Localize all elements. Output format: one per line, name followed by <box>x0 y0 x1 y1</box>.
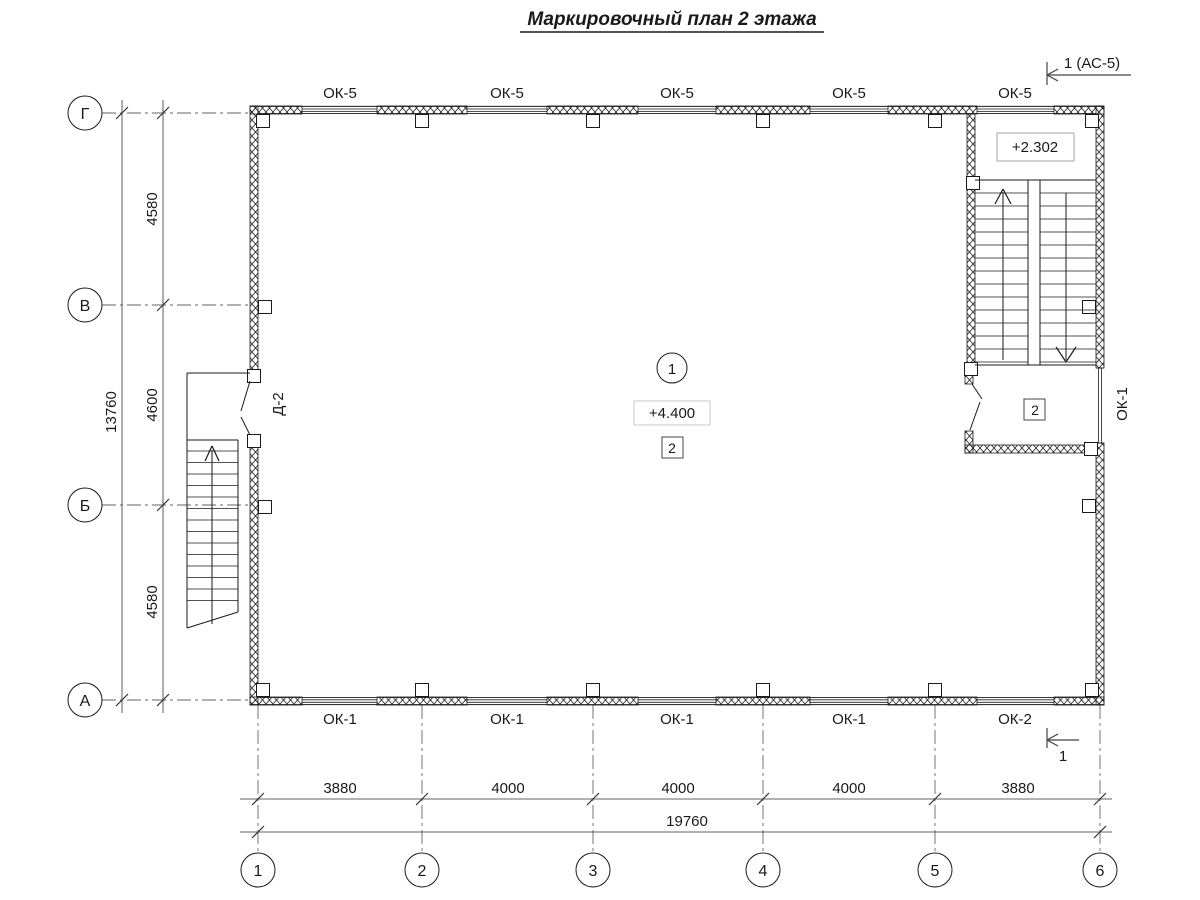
dim-total-bottom: 19760 <box>666 813 708 830</box>
section-marker-top: 1 (АС-5) <box>1047 55 1131 85</box>
dim-segment: 4580 <box>144 585 161 618</box>
section-marker-top-label: 1 (АС-5) <box>1064 55 1120 72</box>
room-number: 1 <box>668 361 676 378</box>
floor-plan-sheet: Маркировочный план 2 этажа ОК-5 ОК-5 ОК-… <box>0 0 1200 900</box>
dim-segment: 4600 <box>144 388 161 421</box>
window-label-top: ОК-5 <box>490 85 524 102</box>
axis-label: 3 <box>589 863 598 880</box>
axis-label: 6 <box>1096 863 1105 880</box>
stair-left-exterior <box>187 373 250 628</box>
window-label-bottom: ОК-1 <box>490 711 524 728</box>
axis-label: В <box>80 298 91 315</box>
dim-segment: 3880 <box>1001 780 1034 797</box>
axis-label: А <box>80 693 91 710</box>
axis-label: 5 <box>931 863 940 880</box>
floor-plan-drawing: Маркировочный план 2 этажа ОК-5 ОК-5 ОК-… <box>0 0 1200 900</box>
section-marker-bottom-label: 1 <box>1059 748 1067 765</box>
dim-segment: 4000 <box>661 780 694 797</box>
elevation-main: +4.400 <box>649 405 695 422</box>
window-label-top: ОК-5 <box>998 85 1032 102</box>
floor-mark-main: 2 <box>668 440 676 456</box>
window-label-top: ОК-5 <box>323 85 357 102</box>
section-marker-bottom: 1 <box>1047 728 1079 765</box>
axis-bubbles-bottom: 1 2 3 4 5 6 <box>241 853 1117 887</box>
axis-label: Б <box>80 498 91 515</box>
window-label-bottom: ОК-1 <box>323 711 357 728</box>
elevation-stair-landing: +2.302 <box>1012 139 1058 156</box>
axis-bubbles-left: Г В Б А <box>68 96 102 717</box>
dim-segment: 4000 <box>832 780 865 797</box>
stair-right <box>975 180 1096 365</box>
axis-label: 4 <box>759 863 768 880</box>
dim-segment: 4000 <box>491 780 524 797</box>
door-label: Д-2 <box>270 392 287 416</box>
dim-total-left: 13760 <box>103 391 120 433</box>
window-label-bottom: ОК-2 <box>998 711 1032 728</box>
dim-segment: 4580 <box>144 192 161 225</box>
window-label-top: ОК-5 <box>832 85 866 102</box>
window-label-bottom: ОК-1 <box>832 711 866 728</box>
floor-mark-vestibule: 2 <box>1031 402 1039 418</box>
window-label-bottom: ОК-1 <box>660 711 694 728</box>
window-label-right: ОК-1 <box>1114 387 1131 421</box>
dimension-lines <box>116 100 1112 838</box>
door-swings <box>241 381 982 435</box>
axis-label: Г <box>81 106 90 123</box>
axis-label: 1 <box>254 863 263 880</box>
window-label-top: ОК-5 <box>660 85 694 102</box>
dim-segment: 3880 <box>323 780 356 797</box>
drawing-title: Маркировочный план 2 этажа <box>527 9 817 30</box>
axis-label: 2 <box>418 863 427 880</box>
